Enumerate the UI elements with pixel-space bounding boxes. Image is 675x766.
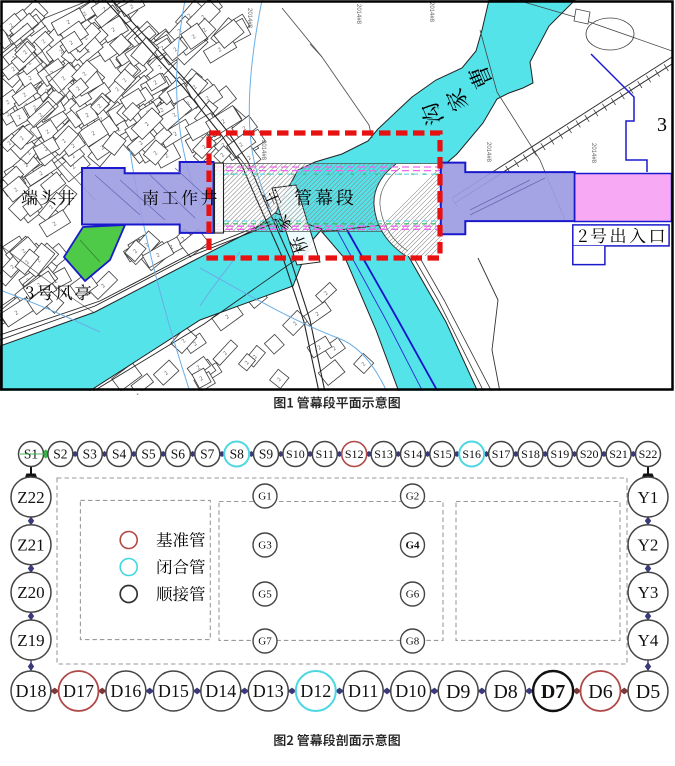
svg-text:S4: S4	[112, 447, 127, 462]
svg-text:Y3: Y3	[638, 583, 659, 602]
svg-text:S12: S12	[345, 447, 364, 461]
svg-text:Y2: Y2	[638, 536, 659, 555]
svg-text:S2: S2	[53, 447, 67, 462]
svg-text:D18: D18	[16, 681, 47, 701]
svg-text:S10: S10	[286, 447, 305, 461]
svg-text:D7: D7	[541, 681, 565, 703]
svg-text:S14: S14	[404, 447, 423, 461]
svg-text:S17: S17	[492, 447, 511, 461]
svg-text:D16: D16	[110, 681, 141, 701]
svg-text:2014#8: 2014#8	[485, 142, 491, 163]
svg-text:S8: S8	[230, 447, 245, 462]
svg-text:3: 3	[657, 114, 667, 136]
svg-text:G6: G6	[406, 589, 420, 601]
svg-text:S6: S6	[171, 447, 186, 462]
svg-text:2014#8: 2014#8	[246, 8, 252, 29]
svg-text:D14: D14	[205, 681, 236, 701]
svg-text:S7: S7	[200, 447, 215, 462]
svg-text:S5: S5	[141, 447, 156, 462]
svg-text:D15: D15	[158, 681, 189, 701]
svg-text:G8: G8	[406, 636, 420, 648]
svg-text:2014#8: 2014#8	[355, 4, 361, 25]
svg-text:S19: S19	[551, 447, 570, 461]
svg-text:G4: G4	[405, 540, 420, 552]
svg-text:2014#8: 2014#8	[428, 2, 434, 23]
svg-text:D10: D10	[395, 681, 426, 701]
svg-text:S11: S11	[316, 447, 334, 461]
svg-text:2014#8: 2014#8	[590, 143, 596, 164]
svg-text:G3: G3	[258, 540, 272, 552]
svg-text:D13: D13	[253, 681, 284, 701]
svg-text:S9: S9	[259, 447, 274, 462]
svg-text:D5: D5	[636, 681, 660, 703]
svg-text:G7: G7	[258, 636, 272, 648]
svg-text:S13: S13	[374, 447, 393, 461]
svg-text:D11: D11	[348, 681, 378, 701]
svg-text:S22: S22	[639, 447, 658, 461]
svg-text:G1: G1	[258, 491, 271, 503]
svg-text:S16: S16	[462, 447, 481, 461]
svg-text:S21: S21	[609, 447, 628, 461]
svg-text:D17: D17	[63, 681, 94, 701]
svg-text:Y1: Y1	[638, 488, 659, 507]
svg-text:Z20: Z20	[17, 583, 44, 602]
svg-text:D9: D9	[446, 681, 470, 703]
svg-text:D6: D6	[588, 681, 612, 703]
svg-text:S15: S15	[433, 447, 452, 461]
svg-text:G2: G2	[406, 491, 419, 503]
svg-text:Z19: Z19	[17, 631, 44, 650]
svg-text:D8: D8	[493, 681, 517, 703]
svg-text:S20: S20	[580, 447, 599, 461]
svg-text:Z21: Z21	[17, 536, 44, 555]
svg-text:Z22: Z22	[17, 488, 44, 507]
svg-text:2014#8: 2014#8	[260, 140, 266, 161]
svg-text:S3: S3	[83, 447, 98, 462]
svg-text:D12: D12	[300, 681, 331, 701]
svg-text:G5: G5	[258, 589, 272, 601]
svg-text:Y4: Y4	[638, 631, 659, 650]
svg-text:S18: S18	[521, 447, 540, 461]
